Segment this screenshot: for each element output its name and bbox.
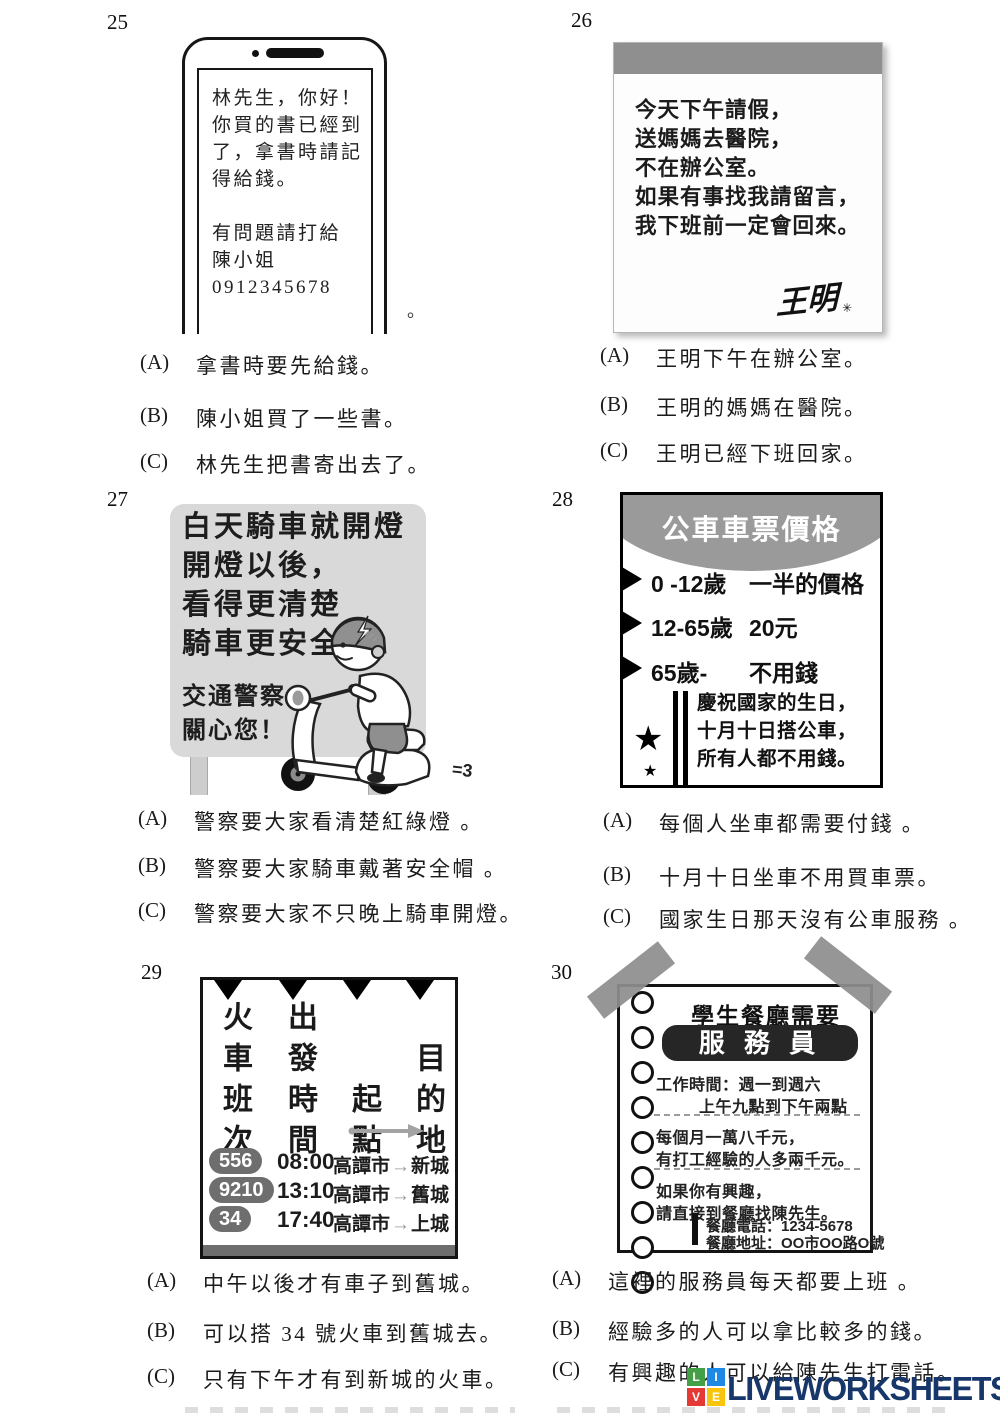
note-line: 如果有事找我請留言，	[635, 183, 860, 212]
option-label: (C)	[603, 904, 659, 934]
hole-icon	[631, 1026, 654, 1049]
option-label: (A)	[147, 1268, 203, 1298]
option-label: (B)	[552, 1316, 608, 1346]
option-text: 十月十日坐車不用買車票。	[659, 862, 941, 892]
option-label: (B)	[147, 1318, 203, 1348]
cutoff-text-artifact	[557, 1407, 957, 1413]
promo-text: 慶祝國家的生日， 十月十日搭公車， 所有人都不用錢。	[697, 689, 857, 773]
note-top-bar	[614, 43, 882, 74]
promo-line: 十月十日搭公車，	[697, 717, 857, 745]
option-text: 王明下午在辦公室。	[656, 343, 868, 373]
question-29-number: 29	[141, 960, 162, 985]
timetable-bottom-bar	[203, 1245, 455, 1256]
column-header-train: 火車班次	[219, 1001, 249, 1165]
marker-triangle-icon	[343, 980, 371, 1000]
note-line: 我下班前一定會回來。	[635, 212, 860, 241]
star-icon: ★	[643, 761, 657, 781]
option-label: (B)	[140, 403, 196, 433]
train-number-badge: 556	[209, 1148, 262, 1174]
option-text: 王明已經下班回家。	[656, 438, 868, 468]
route: 高譚市→上城	[333, 1209, 449, 1236]
option-text: 王明的媽媽在醫院。	[656, 392, 868, 422]
memo-note: 今天下午請假， 送媽媽去醫院， 不在辦公室。 如果有事找我請留言， 我下班前一定…	[613, 42, 883, 333]
sign-line: 白天騎車就開燈	[182, 508, 406, 547]
promo-bar	[673, 691, 678, 787]
fare-price: 20元	[749, 609, 798, 643]
option-label: (C)	[600, 438, 656, 468]
fare-price: 不用錢	[749, 654, 818, 688]
fare-price: 一半的價格	[749, 565, 864, 599]
column-header-departure: 出發時間	[284, 1001, 314, 1165]
train-timetable: 火車班次 出發時間 起點 目的地 556 08:00 高譚市→新城 9210 1…	[200, 977, 458, 1259]
q27-option-b[interactable]: (B) 警察要大家騎車戴著安全帽 。	[138, 853, 507, 883]
job-ad-poster: 學生餐廳需要 服 務 員 工作時間：週一到週六 上午九點到下午兩點 每個月一萬八…	[617, 984, 873, 1253]
option-label: (B)	[600, 392, 656, 422]
signature: 王明	[776, 272, 838, 324]
option-text: 可以搭 34 號火車到舊城去。	[203, 1318, 503, 1348]
q25-option-b[interactable]: (B) 陳小姐買了一些書。	[140, 403, 408, 433]
option-text: 這裡的服務員每天都要上班 。	[608, 1266, 921, 1296]
phone-illustration: 林先生，你好！ 你買的書已經到 了，拿書時請記 得給錢。 有問題請打給 陳小姐 …	[182, 37, 394, 334]
option-label: (C)	[140, 449, 196, 479]
message-line: 了，拿書時請記	[212, 139, 363, 166]
q25-option-c[interactable]: (C) 林先生把書寄出去了。	[140, 449, 431, 479]
route-arrow-icon: →	[390, 1185, 411, 1206]
hole-icon	[631, 1061, 654, 1084]
option-label: (A)	[600, 343, 656, 373]
option-text: 警察要大家不只晚上騎車開燈。	[194, 898, 523, 928]
route-arrow-icon: →	[390, 1156, 411, 1177]
q30-option-a[interactable]: (A) 這裡的服務員每天都要上班 。	[552, 1266, 921, 1296]
q30-option-b[interactable]: (B) 經驗多的人可以拿比較多的錢。	[552, 1316, 937, 1346]
promo-line: 所有人都不用錢。	[697, 745, 857, 773]
promo-line: 慶祝國家的生日，	[697, 689, 857, 717]
bullet-triangle-icon	[622, 656, 642, 680]
fare-age: 12-65歲	[651, 609, 733, 643]
note-text: 今天下午請假， 送媽媽去醫院， 不在辦公室。 如果有事找我請留言， 我下班前一定…	[635, 96, 860, 241]
logo-square-l: L	[687, 1368, 705, 1386]
option-label: (C)	[552, 1357, 608, 1387]
option-label: (C)	[147, 1364, 203, 1394]
q29-option-a[interactable]: (A) 中午以後才有車子到舊城。	[147, 1268, 485, 1298]
sign-line: 開燈以後，	[182, 547, 406, 586]
hole-icon	[631, 1236, 654, 1259]
origin: 高譚市	[333, 1185, 390, 1206]
fare-age: 0 -12歲	[651, 565, 726, 599]
q28-option-b[interactable]: (B) 十月十日坐車不用買車票。	[603, 862, 941, 892]
q28-option-c[interactable]: (C) 國家生日那天沒有公車服務 。	[603, 904, 972, 934]
question-30-number: 30	[551, 960, 572, 985]
question-25-number: 25	[107, 10, 128, 35]
note-line: 不在辦公室。	[635, 154, 860, 183]
liveworksheets-logo-icon: L I V E	[687, 1368, 725, 1406]
hole-icon	[631, 1096, 654, 1119]
option-label: (C)	[138, 898, 194, 928]
bullet-triangle-icon	[622, 611, 642, 635]
message-line: 陳小姐	[212, 247, 363, 274]
departure-time: 08:00	[277, 1149, 335, 1175]
question-28-number: 28	[552, 487, 573, 512]
q29-option-b[interactable]: (B) 可以搭 34 號火車到舊城去。	[147, 1318, 503, 1348]
interest-line: 如果你有興趣，	[656, 1178, 772, 1202]
q26-option-c[interactable]: (C) 王明已經下班回家。	[600, 438, 868, 468]
timetable-row: 9210 13:10 高譚市→舊城	[203, 1177, 455, 1205]
option-label: (A)	[140, 350, 196, 380]
marker-triangle-icon	[279, 980, 307, 1000]
option-text: 中午以後才有車子到舊城。	[203, 1268, 485, 1298]
route: 高譚市→新城	[333, 1151, 449, 1178]
hole-icon	[631, 1131, 654, 1154]
option-text: 拿書時要先給錢。	[196, 350, 384, 380]
watermark-text: LIVEWORKSHEETS	[727, 1372, 1000, 1406]
sign-post-left	[190, 755, 208, 795]
destination: 舊城	[411, 1185, 449, 1206]
contact-bar	[692, 1213, 698, 1245]
origin-destination-arrow-icon	[348, 1123, 428, 1139]
fare-row: 0 -12歲 一半的價格	[623, 565, 880, 595]
logo-square-v: V	[687, 1388, 705, 1406]
q26-option-a[interactable]: (A) 王明下午在辦公室。	[600, 343, 868, 373]
timetable-row: 556 08:00 高譚市→新城	[203, 1148, 455, 1176]
origin: 高譚市	[333, 1156, 390, 1177]
message-line: 得給錢。	[212, 166, 363, 193]
option-text: 陳小姐買了一些書。	[196, 403, 408, 433]
destination: 新城	[411, 1156, 449, 1177]
fare-age: 65歲-	[651, 654, 707, 688]
note-line: 送媽媽去醫院，	[635, 125, 860, 154]
marker-triangle-icon	[214, 980, 242, 1000]
timetable-row: 34 17:40 高譚市→上城	[203, 1206, 455, 1234]
option-label: (B)	[138, 853, 194, 883]
fare-row: 65歲- 不用錢	[623, 654, 880, 684]
origin: 高譚市	[333, 1214, 390, 1235]
hole-icon	[631, 1166, 654, 1189]
binder-holes	[631, 991, 654, 1294]
option-text: 警察要大家看清楚紅綠燈 。	[194, 806, 484, 836]
message-line: 有問題請打給	[212, 220, 363, 247]
cutoff-text-artifact	[185, 1407, 515, 1413]
logo-square-e: E	[707, 1388, 725, 1406]
scooter-rider-illustration	[268, 588, 480, 796]
option-label: (A)	[138, 806, 194, 836]
column-header-destination: 目的地	[412, 1042, 442, 1165]
job-role-badge: 服 務 員	[662, 1025, 858, 1061]
option-text: 林先生把書寄出去了。	[196, 449, 431, 479]
option-label: (A)	[603, 808, 659, 838]
dashed-divider	[654, 1168, 860, 1170]
q28-option-a[interactable]: (A) 每個人坐車都需要付錢 。	[603, 808, 925, 838]
star-icon: ★	[633, 719, 663, 759]
liveworksheets-watermark: L I V E LIVEWORKSHEETS	[687, 1368, 1000, 1406]
salary-line: 每個月一萬八千元，	[656, 1124, 805, 1148]
restaurant-address: 餐廳地址：OO市OO路O號	[706, 1232, 884, 1253]
train-number-badge: 9210	[209, 1177, 274, 1203]
bus-fare-poster: 公車車票價格 0 -12歲 一半的價格 12-65歲 20元 65歲- 不用錢 …	[620, 492, 883, 788]
q27-option-c[interactable]: (C) 警察要大家不只晚上騎車開燈。	[138, 898, 523, 928]
q25-option-a[interactable]: (A) 拿書時要先給錢。	[140, 350, 384, 380]
message-line: 你買的書已經到	[212, 112, 363, 139]
option-text: 只有下午才有到新城的火車。	[203, 1364, 509, 1394]
departure-time: 17:40	[277, 1207, 335, 1233]
q29-option-c[interactable]: (C) 只有下午才有到新城的火車。	[147, 1364, 509, 1394]
work-time-line: 工作時間：週一到週六	[656, 1071, 821, 1095]
q26-option-b[interactable]: (B) 王明的媽媽在醫院。	[600, 392, 868, 422]
poster-title: 公車車票價格	[623, 508, 880, 548]
promo-bar	[683, 691, 688, 787]
marker-triangle-icon	[406, 980, 434, 1000]
route: 高譚市→舊城	[333, 1180, 449, 1207]
logo-square-i: I	[707, 1368, 725, 1386]
note-line: 今天下午請假，	[635, 96, 860, 125]
phone-message-text: 林先生，你好！ 你買的書已經到 了，拿書時請記 得給錢。 有問題請打給 陳小姐 …	[212, 85, 363, 301]
q27-option-a[interactable]: (A) 警察要大家看清楚紅綠燈 。	[138, 806, 484, 836]
departure-time: 13:10	[277, 1178, 335, 1204]
fare-row: 12-65歲 20元	[623, 609, 880, 639]
salary-line: 有打工經驗的人多兩千元。	[656, 1146, 854, 1170]
signature-mark-icon: ✳	[842, 301, 852, 316]
worksheet-page: 25 林先生，你好！ 你買的書已經到 了，拿書時請記 得給錢。 有問題請打給 陳…	[0, 0, 1000, 1413]
phone-camera-dot-icon	[252, 50, 259, 57]
dashed-divider	[654, 1114, 860, 1116]
option-label: (A)	[552, 1266, 608, 1296]
message-line: 林先生，你好！	[212, 85, 363, 112]
train-number-badge: 34	[209, 1206, 251, 1232]
bullet-triangle-icon	[622, 567, 642, 591]
route-arrow-icon: →	[390, 1214, 411, 1235]
stray-period: 。	[407, 297, 425, 323]
option-text: 國家生日那天沒有公車服務 。	[659, 904, 972, 934]
exhaust-mark: =3	[451, 759, 474, 782]
question-27-number: 27	[107, 487, 128, 512]
hole-icon	[631, 1201, 654, 1224]
option-text: 經驗多的人可以拿比較多的錢。	[608, 1316, 937, 1346]
option-label: (B)	[603, 862, 659, 892]
message-line: 0912345678	[212, 274, 363, 301]
question-26-number: 26	[571, 8, 592, 33]
destination: 上城	[411, 1214, 449, 1235]
phone-speaker-icon	[266, 48, 324, 58]
option-text: 警察要大家騎車戴著安全帽 。	[194, 853, 507, 883]
option-text: 每個人坐車都需要付錢 。	[659, 808, 925, 838]
